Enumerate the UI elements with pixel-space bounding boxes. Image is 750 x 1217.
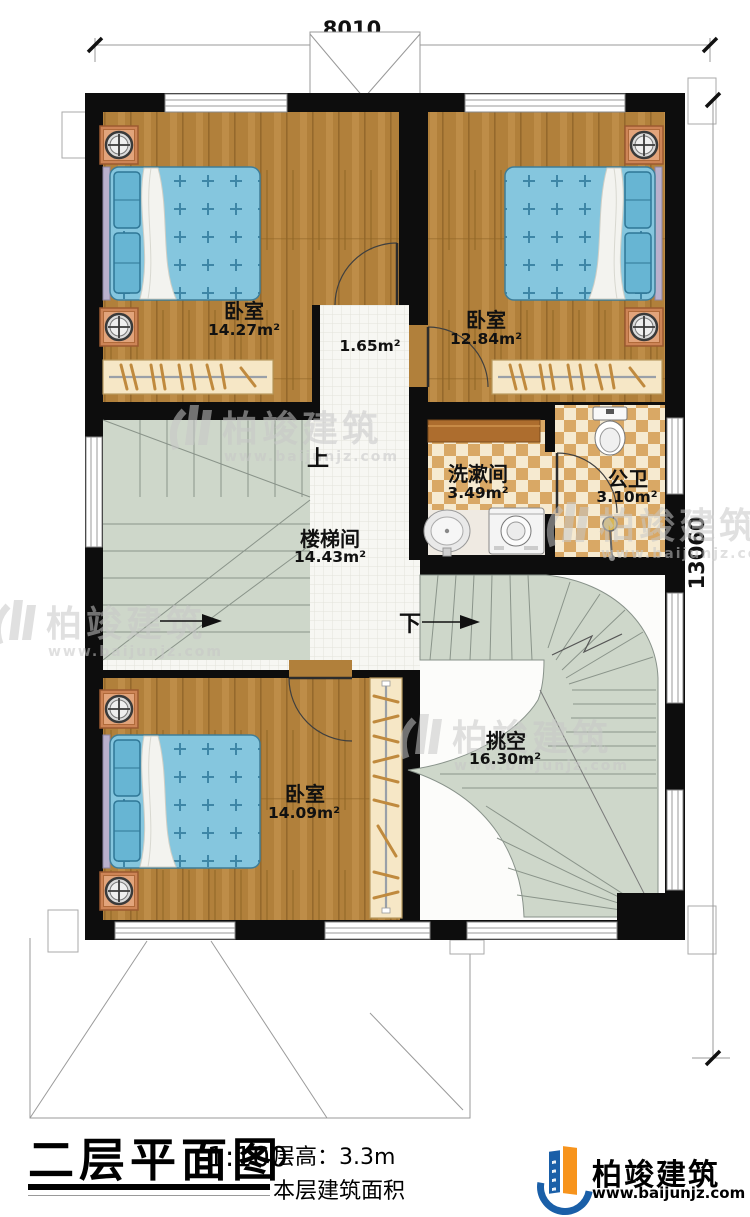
watermark-url: www.baijunjz.com <box>601 546 750 562</box>
floor-height: 层高：3.3m <box>273 1139 395 1171</box>
label-washroom: 洗漱间 <box>448 462 508 486</box>
watermark-name: 柏竣建筑 <box>222 409 382 450</box>
stair-up-label: 上 <box>307 447 329 472</box>
floorplan-drawing: 8010 13060 <box>0 0 750 1217</box>
window-left-stairwell <box>86 437 102 547</box>
bed-b <box>103 735 260 868</box>
label-bedroom-tl: 卧室 <box>224 299 264 323</box>
area-bathroom: 3.10m² <box>596 488 657 506</box>
nightstand <box>100 872 138 910</box>
area-bedroom-tl: 14.27m² <box>208 321 280 339</box>
watermark-name: 柏竣建筑 <box>599 506 750 547</box>
area-washroom: 3.49m² <box>447 484 508 502</box>
window-bottom-void <box>467 922 617 939</box>
watermark-name: 柏竣建筑 <box>46 604 206 645</box>
floor-area-label: 本层建筑面积 <box>273 1173 405 1205</box>
area-stairwell: 14.43m² <box>294 548 366 566</box>
area-hallway: 1.65m² <box>339 337 400 355</box>
gable-window <box>310 32 420 98</box>
doorway-bedroom-tr <box>409 325 428 387</box>
nightstand <box>100 126 138 164</box>
wall-corner-step <box>617 893 685 940</box>
nightstand <box>625 126 663 164</box>
window-right-void-1 <box>667 593 683 703</box>
wardrobe-tr <box>492 360 662 394</box>
wardrobe-b <box>370 678 402 918</box>
area-bedroom-tr: 12.84m² <box>450 330 522 348</box>
title-rule-thin <box>28 1195 270 1196</box>
nightstand <box>625 308 663 346</box>
brand-logo-building-orange <box>563 1146 577 1195</box>
wardrobe-tl <box>103 360 273 394</box>
window-right-bathroom <box>667 418 683 494</box>
brand-logo-icon <box>537 1147 591 1205</box>
bed-tr <box>505 167 662 300</box>
stair-down-label: 下 <box>399 612 421 637</box>
area-void: 16.30m² <box>469 750 541 768</box>
area-bedroom-b: 14.09m² <box>268 804 340 822</box>
window-bottom-bedroom <box>115 922 235 939</box>
brand-url: www.baijunjz.com <box>592 1184 745 1202</box>
washroom-cabinet <box>428 420 540 442</box>
window-top-right <box>465 94 625 112</box>
label-bedroom-tr: 卧室 <box>466 308 506 332</box>
bed-tl <box>103 167 260 300</box>
hallway-floor <box>320 305 409 420</box>
window-bottom-middle <box>325 922 430 939</box>
nightstand <box>100 690 138 728</box>
window-top-left <box>165 94 287 112</box>
nightstand <box>100 308 138 346</box>
doorway-bedroom-b <box>289 660 352 678</box>
brand-logo-building-blue <box>549 1150 560 1194</box>
watermark-url: www.baijunjz.com <box>48 644 223 660</box>
washing-machine <box>489 508 544 554</box>
window-right-void-2 <box>667 790 683 890</box>
doorway-bathroom <box>545 452 555 514</box>
label-bedroom-b: 卧室 <box>285 782 325 806</box>
title-rule <box>28 1184 270 1190</box>
toilet <box>593 407 627 455</box>
floorplan-canvas: 8010 13060 <box>0 0 750 1217</box>
